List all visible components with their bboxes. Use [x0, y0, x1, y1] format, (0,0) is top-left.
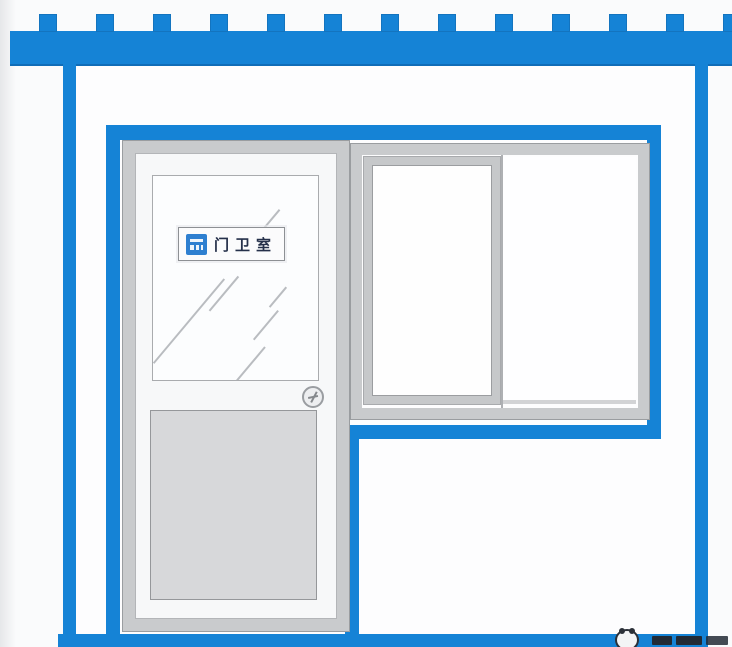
watermark-text-smudge [676, 636, 702, 645]
window-left-pane [364, 157, 500, 404]
glass-reflection-line [269, 287, 287, 308]
parapet-tooth [39, 14, 57, 32]
door-lower-panel [150, 410, 317, 600]
parapet-tooth [324, 14, 342, 32]
door-sign-text: 门卫室 [214, 234, 277, 255]
glass-reflection-line [209, 276, 239, 311]
glass-reflection-line [153, 278, 225, 363]
parapet-tooth [552, 14, 570, 32]
glass-reflection-line [253, 310, 279, 340]
door-knob-icon [302, 386, 324, 408]
parapet-tooth [609, 14, 627, 32]
watermark-text-smudge [706, 636, 728, 645]
parapet-tooth [96, 14, 114, 32]
parapet-tooth [495, 14, 513, 32]
parapet-tooth [381, 14, 399, 32]
guard-room-illustration: 门卫室 [0, 0, 732, 647]
window-glazing-area [362, 155, 638, 408]
facade-frame-top [106, 125, 661, 140]
parapet-tooth [210, 14, 228, 32]
facade-frame-window-sill [345, 425, 661, 439]
parapet-tooth [438, 14, 456, 32]
window-right-pane [503, 157, 636, 404]
parapet-tooth [666, 14, 684, 32]
parapet-tooth [723, 14, 732, 32]
building-right-edge [695, 63, 708, 635]
door-glass-panel [152, 175, 319, 381]
watermark [610, 627, 732, 647]
facade-frame-left [106, 125, 120, 635]
parapet-tooth [267, 14, 285, 32]
parapet-tooth [153, 14, 171, 32]
glass-reflection-line [232, 346, 265, 381]
door-sign: 门卫室 [178, 227, 285, 261]
panda-logo-icon [615, 629, 639, 647]
roof-parapet-band [10, 31, 732, 66]
page-edge-shade [0, 0, 16, 647]
under-window-wall [359, 439, 695, 634]
watermark-text-smudge [652, 636, 672, 645]
building-left-edge [63, 63, 76, 635]
company-logo-icon [186, 234, 207, 255]
